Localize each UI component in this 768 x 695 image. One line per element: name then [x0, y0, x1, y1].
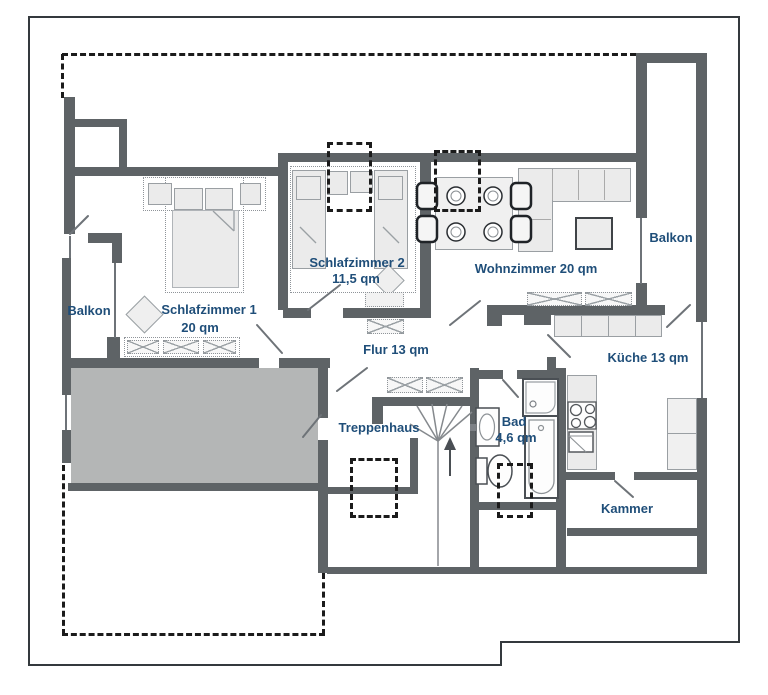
cabinet	[387, 377, 423, 393]
dashed-opening	[327, 142, 372, 212]
stair-direction-arrow	[444, 437, 456, 476]
wall-segment	[318, 366, 328, 418]
dashed-opening	[350, 458, 398, 518]
room-area-schlafzimmer1: 20 qm	[181, 321, 219, 335]
nightstand	[240, 183, 261, 205]
page-border-bottom-left	[28, 664, 502, 666]
wall-segment	[283, 308, 311, 318]
wardrobe	[163, 340, 199, 354]
sofa-cushion-line	[604, 170, 605, 200]
wall-segment	[343, 308, 431, 318]
bed-double	[172, 210, 239, 288]
sofa-cushion-line	[552, 170, 553, 200]
headboard-cabinet	[174, 188, 203, 210]
wall-segment	[567, 528, 707, 536]
room-label-kueche: Küche 13 qm	[608, 351, 689, 365]
kitchen-unit-column	[567, 375, 597, 470]
roof-outline-top	[62, 53, 636, 56]
terrace-outline-bottom	[62, 633, 325, 636]
wall-segment	[470, 368, 479, 567]
wall-segment	[119, 119, 127, 171]
wall-segment	[547, 357, 556, 370]
roof-outline-left	[61, 54, 64, 98]
wall-segment	[318, 440, 328, 573]
window-line	[701, 322, 703, 398]
sofa-cushion-line	[578, 170, 579, 200]
room-label-balkon-right: Balkon	[649, 231, 692, 245]
wall-segment	[420, 162, 431, 318]
cabinet	[426, 377, 463, 393]
radiator	[585, 292, 632, 306]
wall-segment	[64, 167, 287, 176]
sofa-cushion-line	[520, 219, 551, 220]
pillow	[296, 176, 321, 200]
room-label-balkon-left: Balkon	[67, 304, 110, 318]
terrace-outline-right	[322, 573, 325, 635]
room-label-schlafzimmer2: Schlafzimmer 2	[309, 256, 404, 270]
fridge	[667, 398, 697, 470]
wall-segment	[62, 258, 71, 395]
nightstand	[148, 183, 172, 205]
wardrobe	[203, 340, 236, 354]
cabinet	[367, 319, 404, 334]
dashed-opening	[434, 150, 481, 212]
room-label-flur: Flur 13 qm	[363, 343, 429, 357]
window-line	[114, 263, 116, 338]
wall-segment	[62, 430, 71, 463]
wall-segment	[696, 297, 707, 322]
headboard-cabinet	[205, 188, 233, 210]
fridge-divider	[668, 433, 696, 434]
wall-segment	[64, 97, 75, 234]
radiator	[527, 292, 582, 306]
shower	[523, 379, 558, 416]
wall-segment	[634, 472, 697, 480]
room-label-schlafzimmer1: Schlafzimmer 1	[161, 303, 256, 317]
room-area-schlafzimmer2: 11,5 qm	[332, 272, 380, 286]
wall-segment	[470, 370, 503, 379]
wall-segment	[565, 472, 615, 480]
wall-segment	[524, 305, 551, 325]
room-label-treppenhaus: Treppenhaus	[339, 421, 420, 435]
window-line	[65, 395, 67, 430]
page-border-left	[28, 16, 30, 666]
counter-divider	[635, 316, 636, 336]
terrace-outline-left	[62, 465, 65, 635]
counter-divider	[581, 316, 582, 336]
sofa-arm-left	[518, 168, 553, 252]
window-line	[640, 218, 642, 284]
wall-segment	[372, 397, 474, 406]
wall-segment	[636, 283, 647, 310]
page-border-right	[738, 16, 740, 643]
page-border-top	[28, 16, 740, 18]
wall-segment	[556, 368, 566, 567]
wardrobe	[127, 340, 159, 354]
wall-segment	[62, 358, 259, 368]
rug	[365, 292, 404, 307]
floor-plan: Balkon Schlafzimmer 1 20 qm Schlafzimmer…	[0, 0, 768, 695]
wall-segment	[278, 162, 288, 310]
dashed-opening	[497, 463, 533, 518]
wall-segment	[327, 567, 707, 574]
chair-diamond	[125, 295, 163, 333]
room-area-bad: 4,6 qm	[495, 431, 536, 445]
wall-segment	[517, 370, 557, 379]
counter-divider	[608, 316, 609, 336]
wall-segment	[697, 398, 707, 570]
wall-segment	[636, 53, 647, 218]
page-border-bottom-right	[500, 641, 740, 643]
wall-segment	[112, 233, 122, 263]
wall-segment	[487, 305, 502, 326]
pillow	[378, 176, 403, 200]
room-label-kammer: Kammer	[601, 502, 653, 516]
window-line	[69, 236, 71, 258]
wall-segment	[410, 438, 418, 494]
wall-segment	[68, 483, 320, 491]
coffee-table	[575, 217, 613, 250]
room-label-bad: Bad	[502, 415, 527, 429]
wall-segment	[696, 53, 707, 297]
page-border-step	[500, 641, 502, 666]
room-label-wohnzimmer: Wohnzimmer 20 qm	[475, 262, 598, 276]
gray-room-fill	[71, 368, 318, 484]
